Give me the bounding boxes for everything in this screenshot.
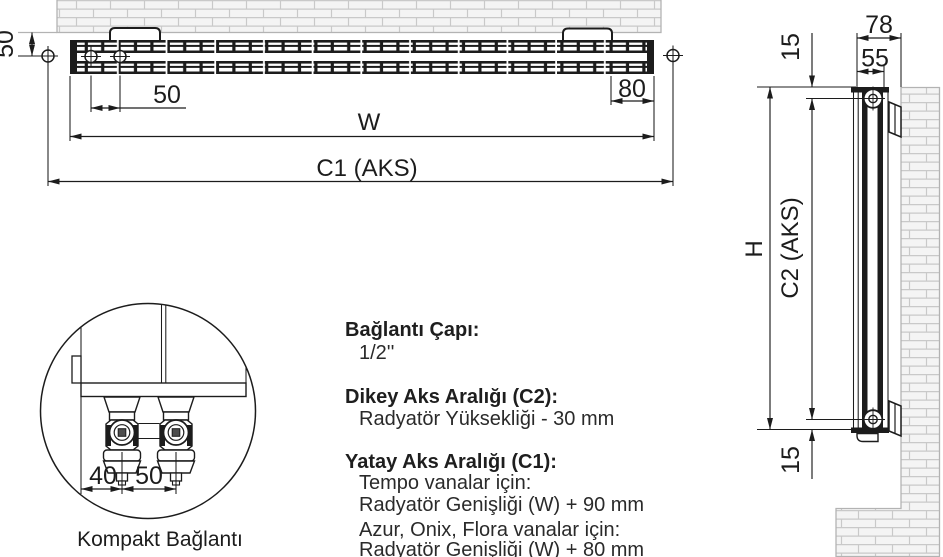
radiator-end-cap-left bbox=[70, 40, 77, 74]
dim-depth-panel-label: 55 bbox=[861, 45, 889, 73]
dim-width-label: W bbox=[358, 109, 381, 136]
dim-hole-spacing-label: 50 bbox=[153, 81, 181, 109]
detail-bottom-rail bbox=[81, 383, 246, 397]
dim-c1-axis-label: C1 (AKS) bbox=[316, 155, 417, 182]
side-bracket-top bbox=[889, 102, 901, 137]
spec-horizontal-axis-line1: Tempo vanalar için: bbox=[359, 472, 531, 494]
spec-vertical-axis-title: Dikey Aks Aralığı (C2): bbox=[345, 386, 558, 408]
radiator-top-view: 50 50 80 W C1 (AKS) bbox=[0, 28, 683, 186]
dim-valve-spacing-label: 50 bbox=[135, 462, 163, 490]
detail-side-step bbox=[72, 356, 81, 383]
radiator-band-rear bbox=[70, 61, 654, 74]
detail-caption: Kompakt Bağlantı bbox=[77, 528, 243, 551]
dim-edge-to-valve-label: 40 bbox=[89, 462, 117, 490]
spec-vertical-axis-value: Radyatör Yüksekliği - 30 mm bbox=[359, 408, 614, 430]
spec-horizontal-axis-line4: Radyatör Genişliği (W) + 80 mm bbox=[359, 539, 644, 557]
spec-horizontal-axis-line2: Radyatör Genişliği (W) + 90 mm bbox=[359, 494, 644, 516]
dim-bottom-pipe-offset-label: 15 bbox=[777, 446, 805, 474]
dim-depth-total-label: 78 bbox=[865, 11, 893, 39]
technical-drawing-page: 50 50 80 W C1 (AKS) bbox=[0, 0, 943, 557]
dim-c2-axis-label: C2 (AKS) bbox=[777, 197, 804, 298]
dim-top-pipe-offset-label: 15 bbox=[777, 33, 805, 61]
bottom-elbow bbox=[857, 434, 878, 442]
spec-connection-diameter-value: 1/2'' bbox=[359, 342, 394, 364]
drawing-canvas: 50 50 80 W C1 (AKS) bbox=[0, 0, 943, 557]
radiator-side-view: 78 55 15 H C2 (AKS) 15 bbox=[741, 11, 940, 557]
radiator-band-front bbox=[70, 40, 654, 53]
dim-height-label: H bbox=[741, 240, 768, 257]
spec-horizontal-axis-title: Yatay Aks Aralığı (C1): bbox=[345, 451, 557, 473]
spec-connection-diameter-title: Bağlantı Çapı: bbox=[345, 319, 479, 341]
spec-text-block: Bağlantı Çapı: 1/2'' Dikey Aks Aralığı (… bbox=[345, 319, 644, 557]
dim-wall-offset-label: 50 bbox=[0, 30, 19, 58]
spec-horizontal-axis-line3: Azur, Onix, Flora vanalar için: bbox=[359, 519, 620, 541]
dim-bracket-end-label: 80 bbox=[618, 75, 646, 103]
compact-connection-detail: 40 50 Kompakt Bağlantı bbox=[41, 298, 256, 551]
radiator-end-cap-right bbox=[647, 40, 654, 74]
side-bracket-bottom bbox=[889, 401, 901, 436]
